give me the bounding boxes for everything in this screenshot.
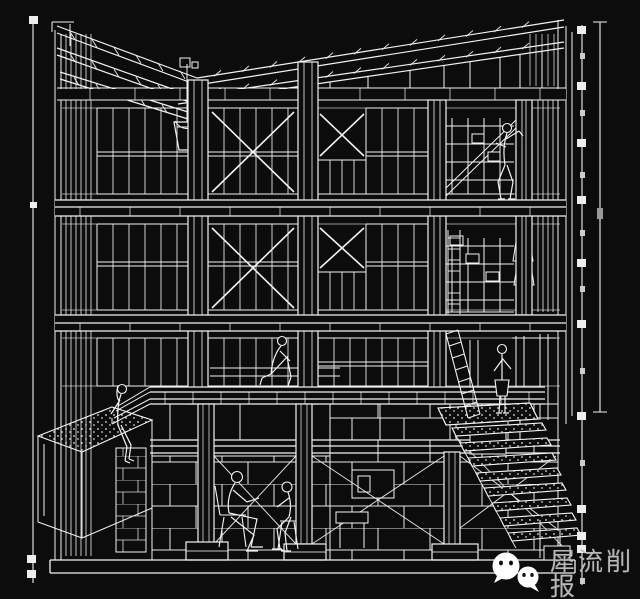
wechat-bubbles-icon <box>484 549 546 599</box>
dimension-line <box>593 22 607 412</box>
left-survey-line <box>27 16 38 583</box>
watermark: 犀流削报 <box>484 549 640 599</box>
building-section-drawing <box>0 0 640 599</box>
drawing-canvas: 犀流削报 <box>0 0 640 599</box>
figure-sitting-on-deck <box>260 337 291 387</box>
watermark-text: 犀流削报 <box>550 550 640 599</box>
right-scale-ruler <box>577 25 586 585</box>
